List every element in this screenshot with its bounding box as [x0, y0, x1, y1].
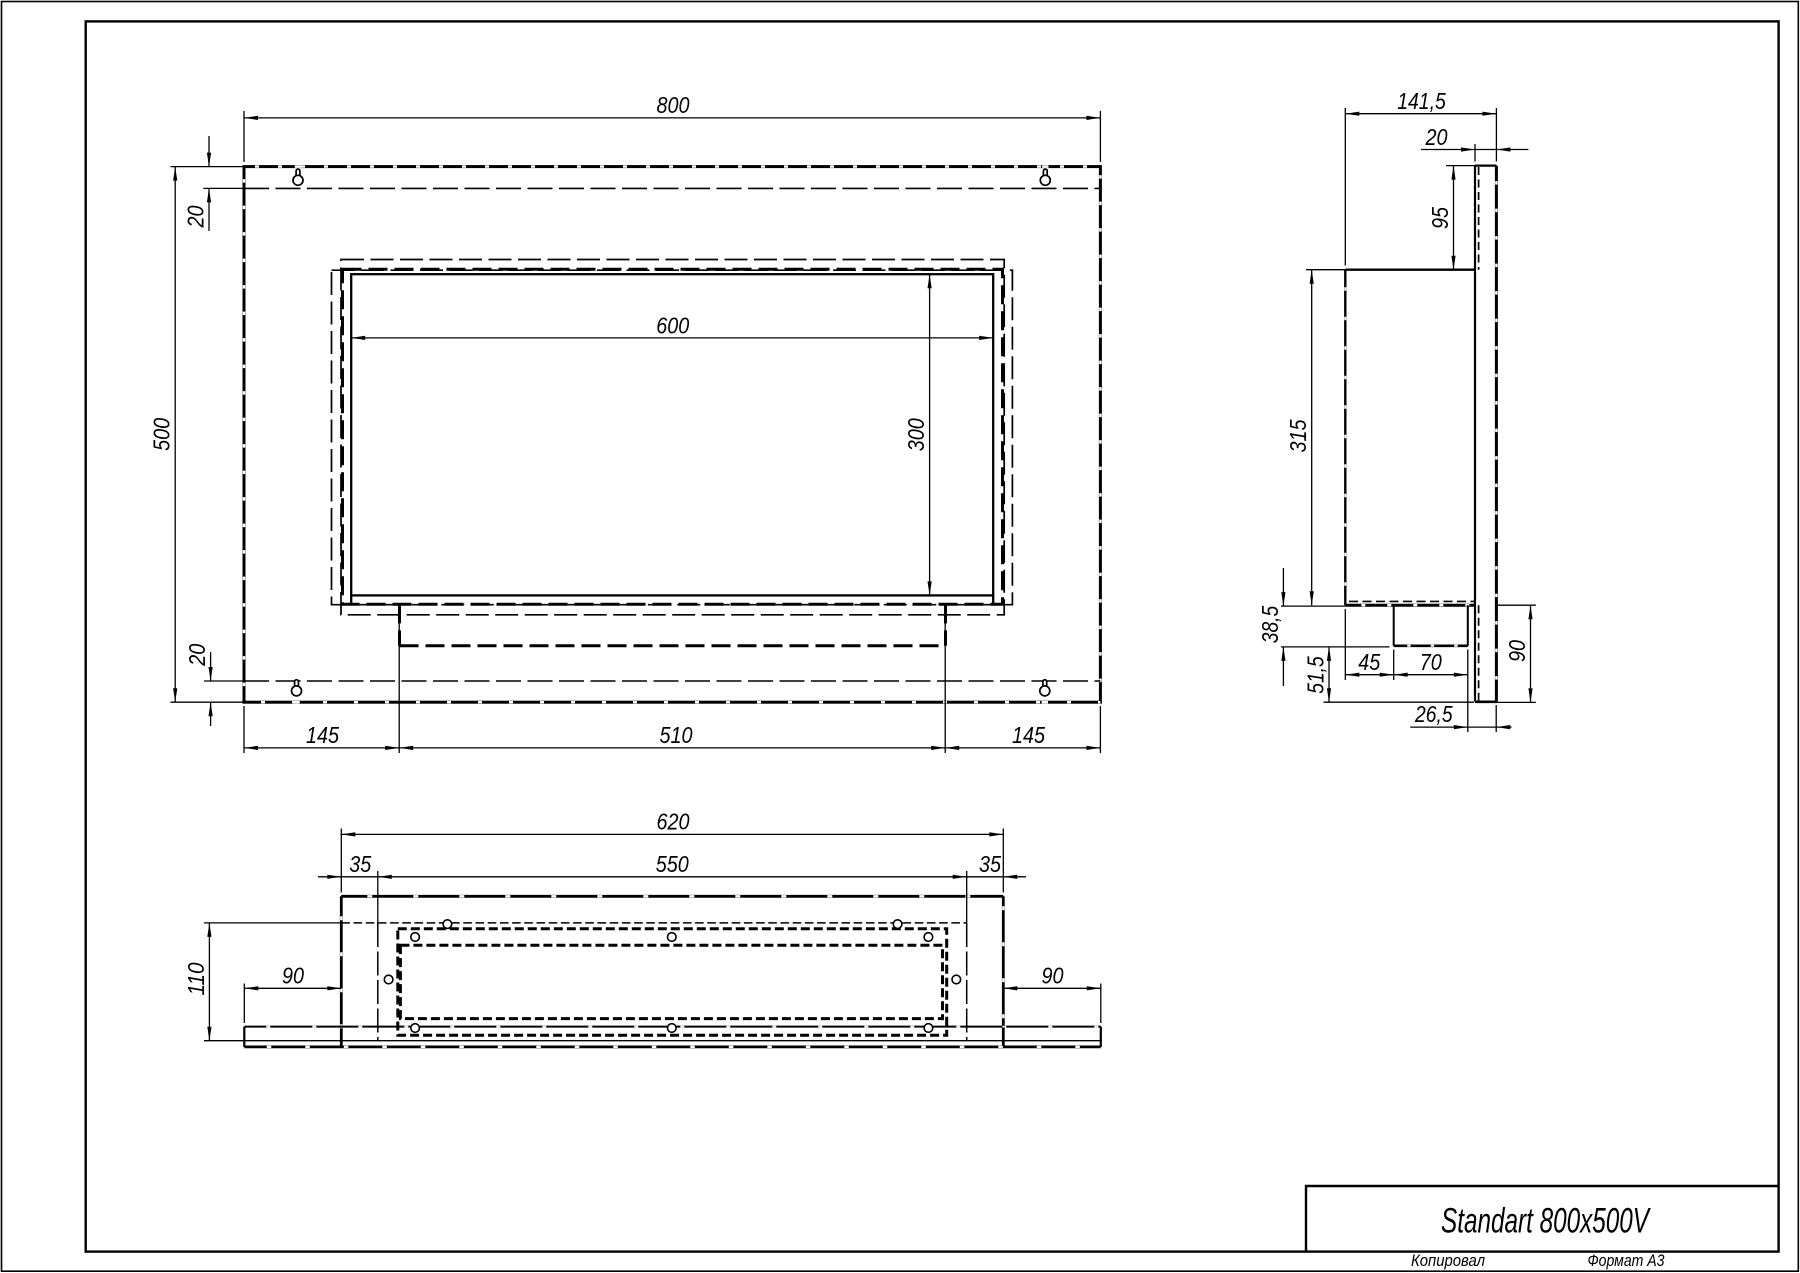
svg-text:Формат А3: Формат А3 — [1588, 1251, 1665, 1270]
svg-text:600: 600 — [656, 312, 689, 338]
svg-text:45: 45 — [1358, 649, 1381, 675]
svg-text:70: 70 — [1420, 649, 1442, 675]
svg-text:90: 90 — [1042, 963, 1064, 989]
svg-text:51,5: 51,5 — [1303, 655, 1329, 693]
svg-text:35: 35 — [979, 851, 1002, 877]
svg-text:800: 800 — [657, 92, 690, 118]
svg-text:550: 550 — [656, 851, 689, 877]
svg-text:90: 90 — [282, 963, 304, 989]
svg-text:110: 110 — [183, 963, 209, 996]
svg-text:20: 20 — [184, 644, 210, 667]
svg-text:510: 510 — [660, 722, 693, 748]
svg-text:315: 315 — [1285, 419, 1311, 453]
svg-text:Standart 800x500V: Standart 800x500V — [1441, 1202, 1652, 1241]
svg-text:38,5: 38,5 — [1257, 605, 1283, 643]
svg-text:620: 620 — [657, 809, 690, 835]
svg-text:20: 20 — [1425, 124, 1448, 150]
svg-text:26,5: 26,5 — [1414, 701, 1453, 727]
svg-text:145: 145 — [306, 722, 340, 748]
svg-text:35: 35 — [349, 851, 372, 877]
svg-text:Копировал: Копировал — [1411, 1251, 1485, 1270]
svg-text:300: 300 — [903, 418, 929, 451]
svg-text:95: 95 — [1427, 206, 1453, 229]
svg-text:145: 145 — [1012, 722, 1046, 748]
svg-text:141,5: 141,5 — [1397, 88, 1446, 114]
svg-text:20: 20 — [183, 206, 209, 229]
svg-text:90: 90 — [1504, 640, 1530, 662]
svg-text:500: 500 — [149, 418, 175, 451]
